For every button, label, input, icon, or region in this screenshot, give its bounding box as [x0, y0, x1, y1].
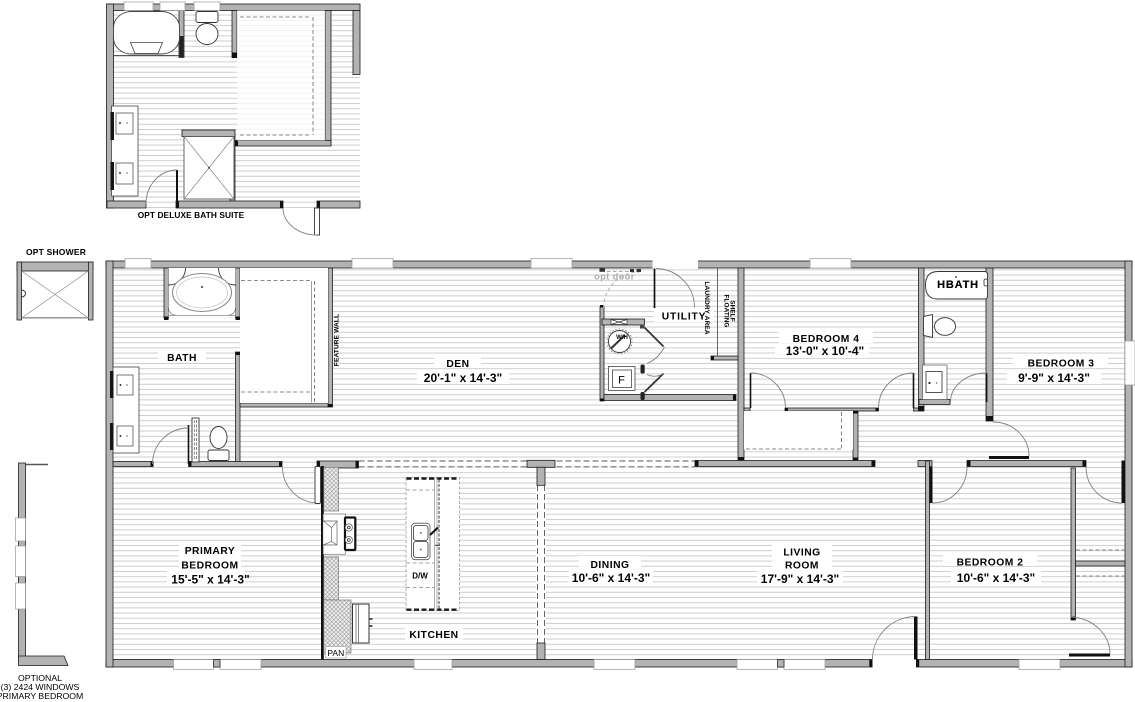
svg-text:OPT DELUXE BATH SUITE: OPT DELUXE BATH SUITE — [138, 210, 245, 220]
svg-text:PRIMARY BEDROOM: PRIMARY BEDROOM — [0, 691, 83, 701]
svg-text:10'-6" x 14'-3": 10'-6" x 14'-3" — [572, 571, 650, 585]
svg-text:BEDROOM 2: BEDROOM 2 — [957, 558, 1024, 569]
svg-text:9'-9" x 14'-3": 9'-9" x 14'-3" — [1018, 371, 1090, 385]
svg-text:BATH: BATH — [167, 353, 197, 364]
svg-text:D/W: D/W — [412, 572, 428, 581]
svg-text:10'-6" x 14'-3": 10'-6" x 14'-3" — [957, 571, 1035, 585]
svg-text:opt door: opt door — [594, 272, 635, 282]
svg-text:17'-9" x 14'-3": 17'-9" x 14'-3" — [761, 572, 839, 586]
svg-text:OPT SHOWER: OPT SHOWER — [26, 247, 86, 257]
svg-text:PAN: PAN — [327, 648, 344, 658]
svg-text:FEATURE WALL: FEATURE WALL — [334, 314, 341, 366]
svg-text:PRIMARY: PRIMARY — [185, 546, 236, 557]
svg-text:UTILITY: UTILITY — [662, 312, 707, 323]
svg-text:KITCHEN: KITCHEN — [409, 630, 458, 641]
svg-text:LAUNDRY AREA: LAUNDRY AREA — [703, 281, 710, 334]
svg-text:FLOATING: FLOATING — [723, 295, 730, 328]
svg-text:15'-5" x 14'-3": 15'-5" x 14'-3" — [171, 573, 249, 587]
svg-text:F: F — [618, 375, 625, 387]
svg-text:LIVING: LIVING — [783, 548, 820, 559]
svg-text:DEN: DEN — [446, 359, 469, 370]
svg-text:BEDROOM: BEDROOM — [181, 561, 238, 572]
svg-text:W/H: W/H — [616, 335, 628, 341]
svg-text:DINING: DINING — [590, 560, 629, 571]
svg-text:13'-0" x 10'-4": 13'-0" x 10'-4" — [786, 344, 864, 358]
svg-text:ROOM: ROOM — [785, 561, 819, 572]
svg-text:SHELF: SHELF — [729, 300, 736, 321]
svg-text:BEDROOM 3: BEDROOM 3 — [1028, 359, 1095, 370]
svg-text:20'-1" x 14'-3": 20'-1" x 14'-3" — [424, 371, 502, 385]
svg-text:HBATH: HBATH — [937, 279, 979, 291]
